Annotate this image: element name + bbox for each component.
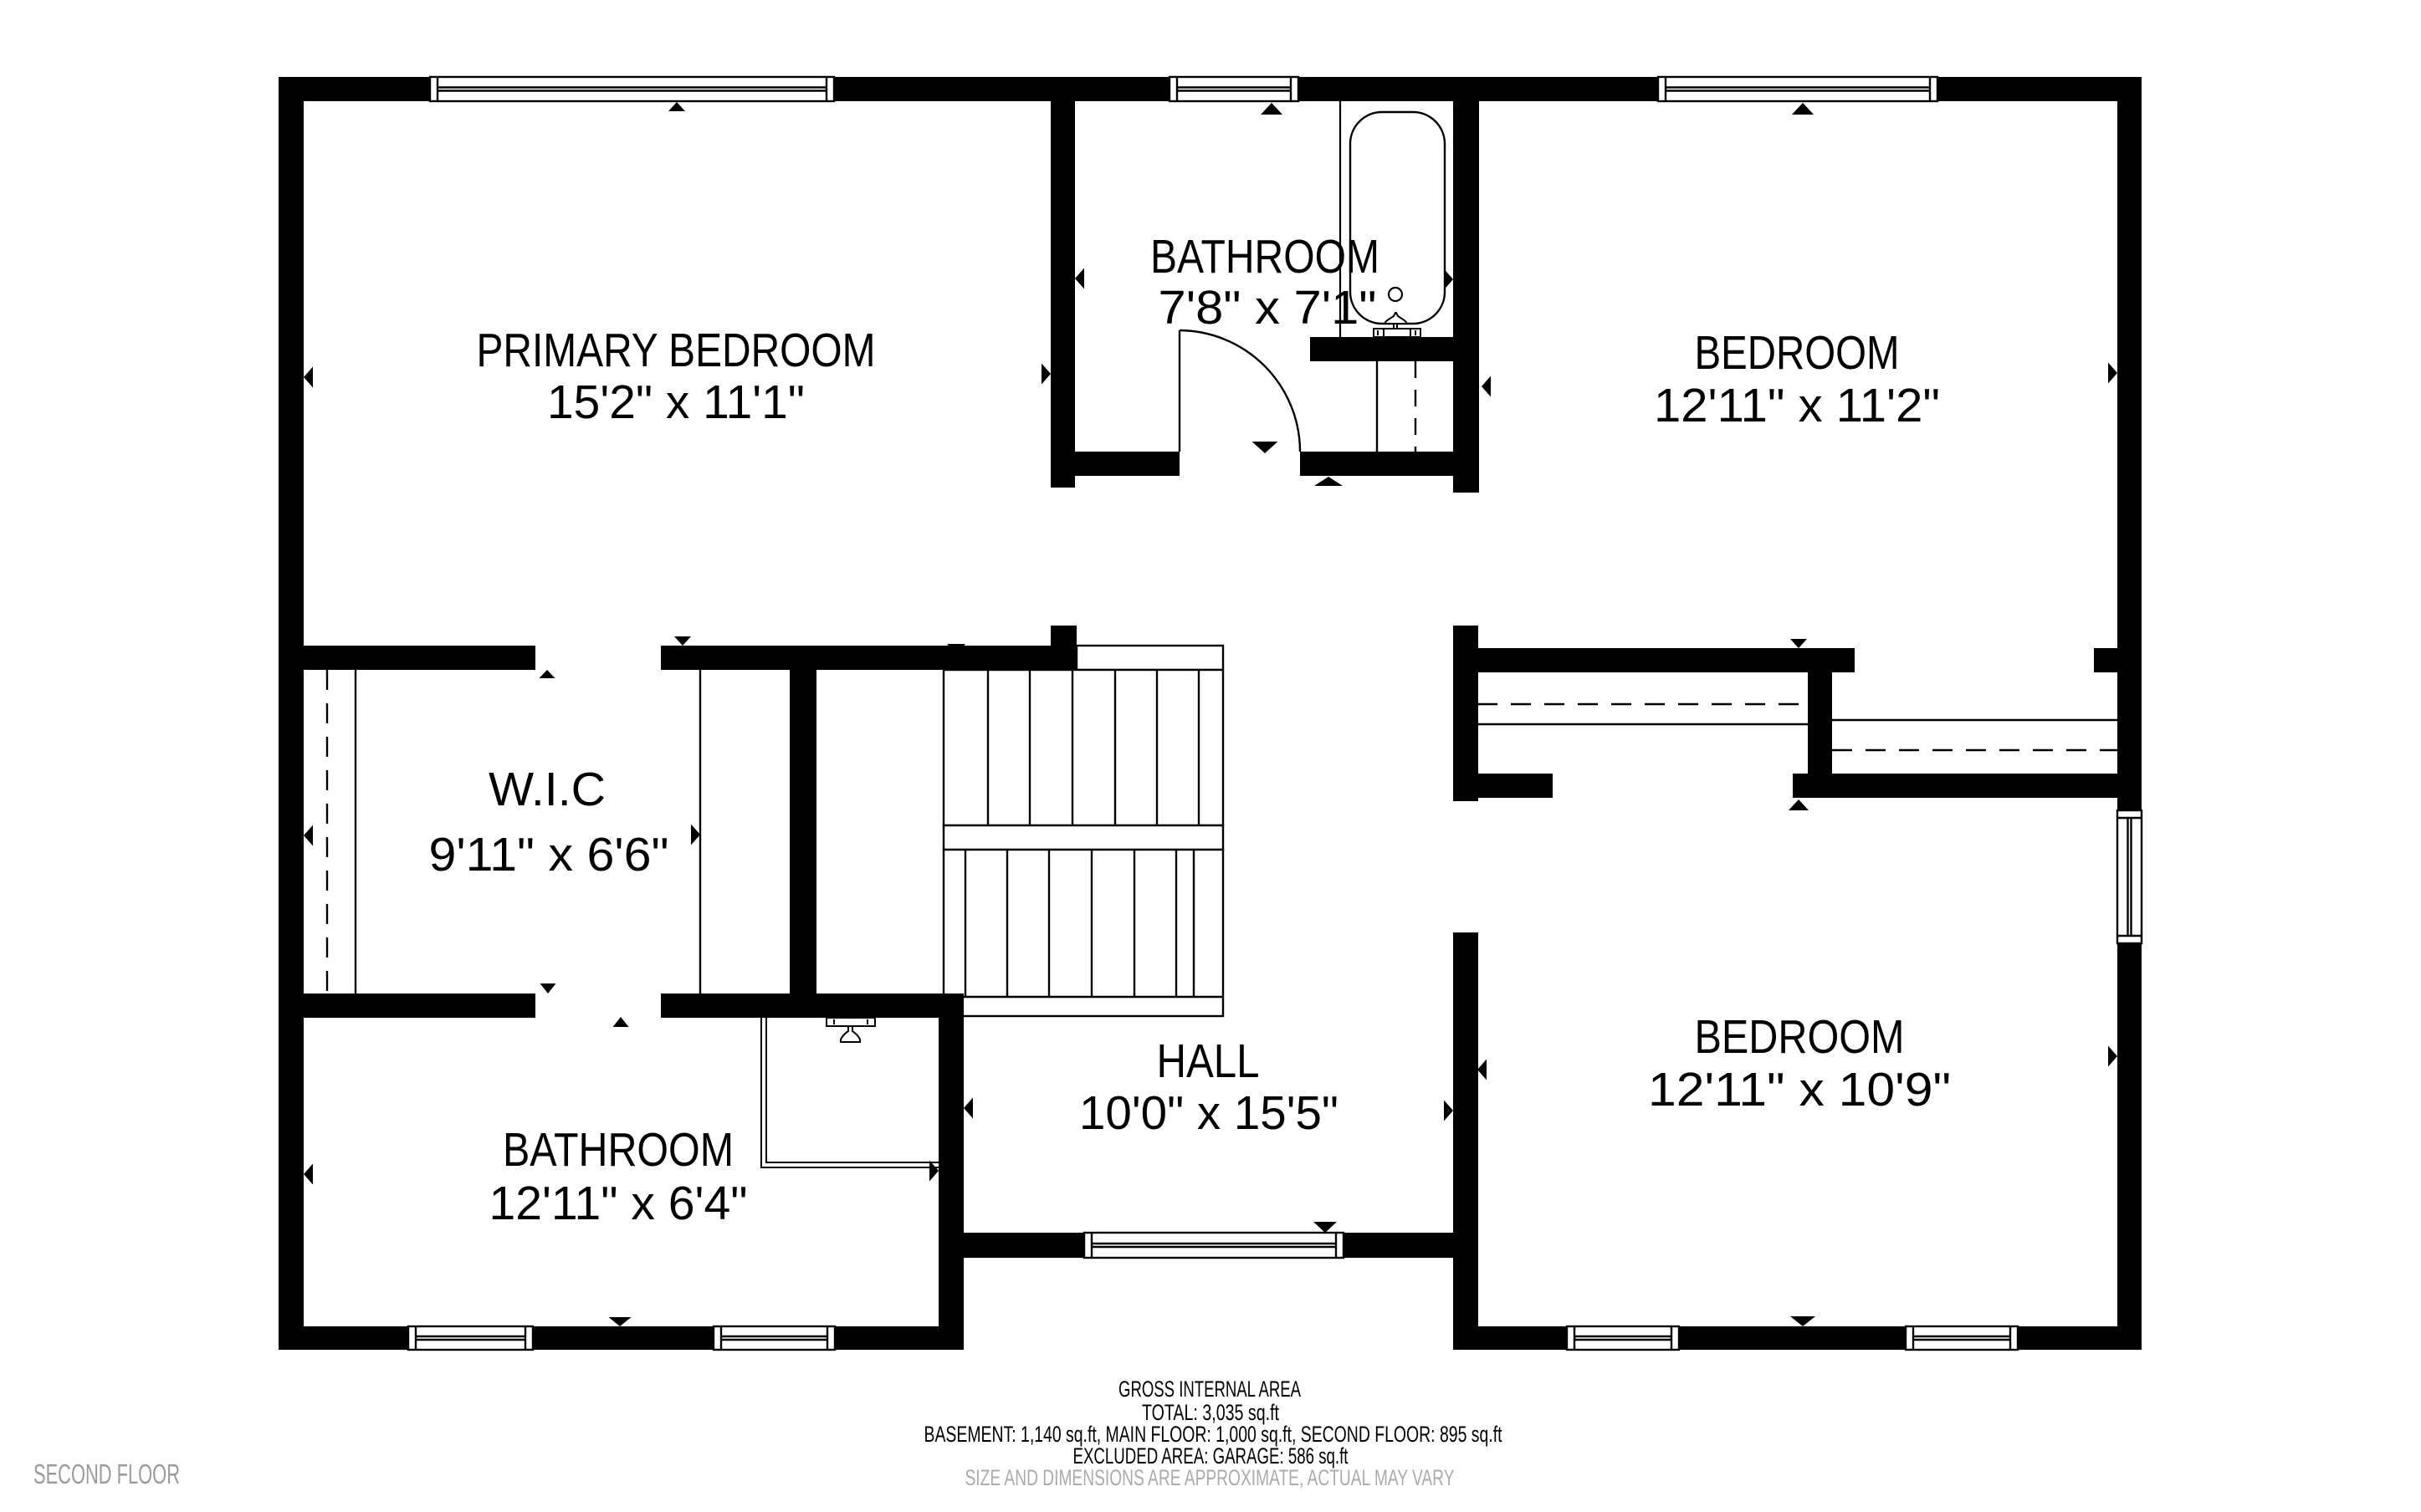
svg-text:HALL: HALL (1157, 1034, 1260, 1088)
svg-text:15'2" x 11'1": 15'2" x 11'1" (547, 375, 805, 429)
svg-text:7'8" x 7'1": 7'8" x 7'1" (1159, 281, 1377, 335)
svg-text:SIZE AND DIMENSIONS ARE APPROX: SIZE AND DIMENSIONS ARE APPROXIMATE, ACT… (965, 1465, 1455, 1490)
svg-text:12'11" x 10'9": 12'11" x 10'9" (1648, 1063, 1951, 1116)
svg-text:BATHROOM: BATHROOM (1150, 230, 1379, 283)
svg-text:PRIMARY BEDROOM: PRIMARY BEDROOM (477, 324, 876, 377)
svg-text:9'11" x 6'6": 9'11" x 6'6" (429, 828, 669, 881)
svg-text:12'11" x 11'2": 12'11" x 11'2" (1654, 379, 1940, 432)
svg-text:SECOND FLOOR: SECOND FLOOR (33, 1458, 180, 1489)
svg-text:BEDROOM: BEDROOM (1695, 1010, 1905, 1064)
svg-text:W.I.C: W.I.C (489, 763, 606, 816)
svg-text:12'11" x 6'4": 12'11" x 6'4" (489, 1177, 748, 1230)
svg-text:BATHROOM: BATHROOM (503, 1123, 734, 1177)
svg-text:BEDROOM: BEDROOM (1695, 326, 1900, 380)
svg-text:10'0" x 15'5": 10'0" x 15'5" (1079, 1086, 1338, 1140)
svg-text:GROSS INTERNAL AREA: GROSS INTERNAL AREA (1118, 1377, 1301, 1402)
